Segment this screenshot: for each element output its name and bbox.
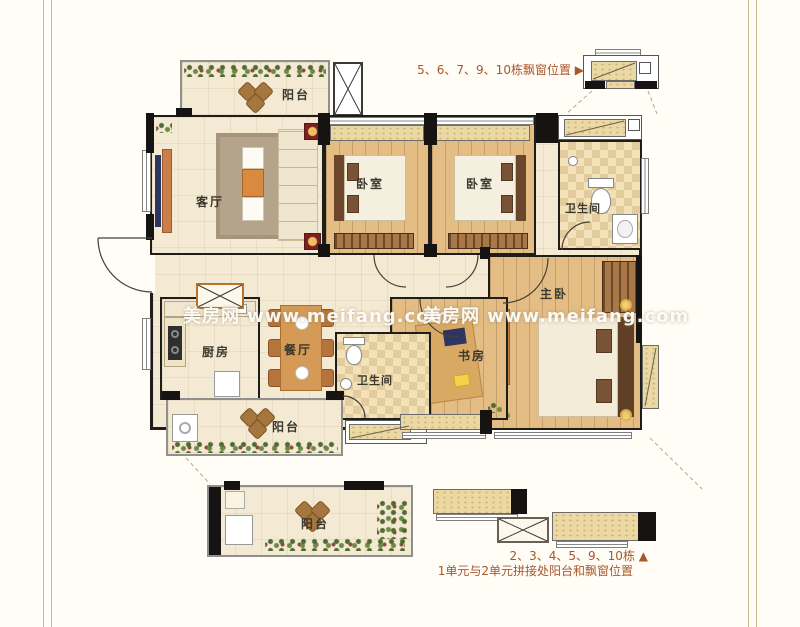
wall-segment — [318, 113, 330, 145]
living-room: 客厅 — [150, 115, 324, 255]
wall-segment — [424, 113, 437, 145]
desk-pad — [453, 373, 471, 387]
sink-icon — [612, 214, 638, 244]
wall-segment — [480, 410, 492, 434]
wall-segment — [162, 391, 180, 400]
shaft-box-detail — [497, 517, 549, 543]
wall-segment — [636, 255, 642, 343]
wall-segment — [344, 481, 384, 490]
chair — [320, 339, 334, 357]
balcony-bottom-label: 阳台 — [272, 418, 300, 435]
coffee-table — [242, 147, 264, 169]
burner-icon — [171, 346, 179, 354]
pillow — [347, 195, 359, 213]
wardrobe — [334, 233, 414, 249]
window — [432, 117, 534, 125]
window — [641, 158, 649, 214]
plants-icon — [184, 63, 326, 77]
balcony-cabinet — [225, 491, 245, 509]
bay-window — [400, 414, 488, 430]
master-bedroom-label: 主卧 — [540, 285, 568, 302]
bedroom-left-label: 卧室 — [356, 175, 384, 192]
frame-line-right-inner — [748, 0, 749, 627]
wall-segment — [635, 81, 657, 89]
bay-window — [591, 61, 637, 81]
bed — [538, 317, 634, 417]
door-arc-entrance — [98, 238, 152, 292]
window — [494, 432, 632, 439]
living-room-label: 客厅 — [196, 193, 224, 210]
bedroom-left: 卧室 — [324, 115, 430, 255]
balcony-detail-label: 阳台 — [301, 515, 329, 532]
master-bedroom: 主卧 — [488, 255, 642, 430]
balcony-top-label: 阳台 — [282, 86, 310, 103]
pillow — [596, 379, 612, 403]
annotation-bottom-line2: 1单元与2单元拼接处阳台和飘窗位置 — [438, 562, 633, 579]
wall-segment — [176, 108, 192, 117]
bay-window — [564, 119, 626, 137]
toilet-tank — [588, 178, 614, 188]
wall-segment — [536, 113, 558, 143]
shower-icon — [568, 156, 578, 166]
window — [326, 117, 428, 125]
pillow — [596, 329, 612, 353]
tv-cabinet — [162, 149, 172, 233]
frame-line-left-inner — [51, 0, 52, 627]
wall-segment — [318, 244, 330, 257]
plants-icon — [172, 440, 338, 453]
shower-icon — [340, 378, 352, 390]
pillow — [501, 163, 513, 181]
tv-icon — [155, 155, 161, 227]
balcony-bottom: 阳台 — [166, 398, 343, 456]
coffee-table — [242, 197, 264, 221]
chair — [320, 369, 334, 387]
bathroom-top-label: 卫生间 — [565, 200, 601, 216]
dashed-connector — [186, 458, 210, 484]
laptop-icon — [443, 328, 467, 347]
washer-icon — [225, 515, 253, 545]
bathroom-top: 卫生间 — [558, 140, 642, 250]
toilet-tank — [343, 337, 365, 345]
plate-icon — [295, 366, 309, 380]
bed-headboard — [516, 155, 526, 221]
dining-room-label: 餐厅 — [284, 341, 312, 358]
watermark: 美房网 www.meifang.com — [423, 302, 689, 328]
burner-icon — [171, 330, 179, 338]
dashed-connector — [648, 91, 657, 114]
bay-window — [436, 125, 530, 141]
window — [142, 318, 151, 370]
wall-segment — [511, 489, 527, 514]
wall-segment — [146, 113, 154, 153]
stove-icon — [168, 326, 182, 360]
bathroom-bottom: 卫生间 — [335, 332, 431, 420]
kitchen-label: 厨房 — [202, 343, 230, 360]
wall-segment — [209, 487, 221, 555]
bedroom-right: 卧室 — [430, 115, 536, 255]
bay-window — [330, 125, 424, 141]
balcony-top: 阳台 — [180, 60, 330, 117]
dashed-connector — [566, 91, 592, 114]
washer-door — [179, 422, 191, 434]
wall-segment — [146, 214, 154, 240]
frame-line-right-outer — [756, 0, 757, 627]
wall-segment — [326, 391, 344, 400]
watermark: 美房网 www.meifang.com — [183, 302, 449, 328]
toilet-icon — [346, 345, 362, 365]
study-label: 书房 — [458, 347, 486, 364]
sink-basin — [617, 220, 633, 238]
shaft-box — [333, 62, 363, 116]
bay-window — [642, 345, 659, 409]
wall-segment — [480, 247, 490, 259]
bathroom-bottom-label: 卫生间 — [357, 372, 393, 388]
plants-icon — [265, 537, 405, 551]
sofa — [278, 129, 318, 241]
window — [142, 150, 151, 212]
annotation-top-right: 5、6、7、9、10栋飘窗位置 ▶ — [417, 61, 584, 78]
plant-icon — [156, 121, 172, 133]
wall-segment — [424, 244, 437, 257]
bay-window — [606, 81, 635, 89]
washer-icon — [172, 414, 198, 442]
plants-icon — [377, 499, 407, 539]
frame-line-left-outer — [43, 0, 44, 627]
downlight-icon — [620, 409, 632, 421]
wall-segment — [224, 481, 240, 490]
floorplan-canvas: 阳台 客厅 卧室 — [0, 0, 800, 627]
fridge-icon — [214, 371, 240, 397]
bed-headboard — [334, 155, 344, 221]
wall-segment — [638, 512, 656, 541]
balcony-detail: 阳台 — [207, 485, 413, 557]
dashed-connector — [650, 438, 702, 489]
bay-window-pier — [639, 62, 651, 74]
wall-segment — [585, 81, 605, 89]
coffee-table — [242, 169, 264, 197]
bed-headboard — [618, 317, 634, 417]
bay-window-pier — [628, 119, 640, 131]
window — [402, 432, 486, 439]
bedroom-right-label: 卧室 — [466, 175, 494, 192]
pillow — [501, 195, 513, 213]
